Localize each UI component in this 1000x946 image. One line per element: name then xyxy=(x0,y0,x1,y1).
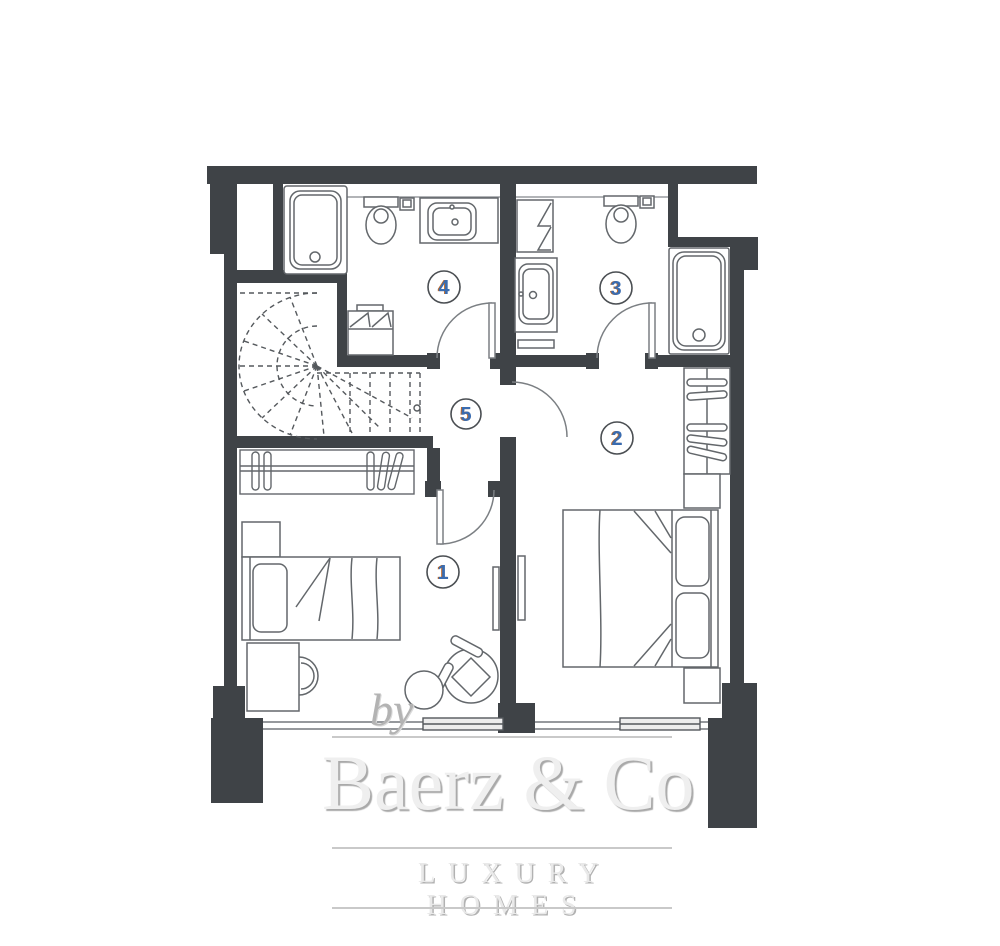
watermark-by: by xyxy=(370,683,413,736)
tv-room1 xyxy=(493,567,499,630)
room-label-4: 4 xyxy=(428,271,460,303)
wall-right xyxy=(730,247,744,683)
svg-text:5: 5 xyxy=(460,404,471,426)
wall-notch-left xyxy=(668,184,678,237)
floor-plan-drawing: 1 2 3 4 5 xyxy=(0,0,1000,946)
toilet-paper-holder xyxy=(640,196,654,208)
bathroom4-fixtures xyxy=(284,186,498,355)
wall-left xyxy=(224,184,237,686)
wall-notch-bottom xyxy=(668,237,758,247)
tv-room2 xyxy=(518,556,525,620)
room2-furniture xyxy=(518,368,730,703)
desk xyxy=(247,643,318,711)
room-label-2: 2 xyxy=(601,422,633,454)
nightstand xyxy=(242,522,280,557)
sink-vanity xyxy=(420,198,498,243)
nightstand xyxy=(684,474,720,508)
floor-plan-page: by Baerz & Co LUXURY HOMES xyxy=(0,0,1000,946)
door-room2 xyxy=(512,382,567,437)
room-label-3: 3 xyxy=(600,272,632,304)
wall-pillar-bottom-right-a xyxy=(722,683,757,718)
single-bed xyxy=(242,557,400,640)
wall-pillar-bottom-left-b xyxy=(211,718,263,803)
door-room3 xyxy=(597,303,655,358)
wall-divider-lower xyxy=(500,437,516,710)
tall-cabinet xyxy=(517,200,553,252)
nightstand xyxy=(684,668,720,703)
toilet xyxy=(364,197,398,244)
wall-under-stairs xyxy=(225,436,433,448)
cabinet xyxy=(348,305,393,355)
door-jamb xyxy=(427,353,440,369)
shower xyxy=(284,186,347,274)
wall-shaft-right xyxy=(273,184,283,283)
toilet xyxy=(604,196,638,243)
sink-vanity xyxy=(515,258,557,348)
double-bed xyxy=(563,510,718,667)
wall-top xyxy=(207,166,757,184)
wall-pillar-bottom-right-b xyxy=(708,718,757,828)
toilet-paper-holder xyxy=(400,198,414,210)
svg-text:2: 2 xyxy=(611,428,622,450)
wall-divider-upper xyxy=(500,184,516,385)
wardrobe xyxy=(684,368,730,474)
room-label-1: 1 xyxy=(427,556,459,588)
svg-text:1: 1 xyxy=(437,562,448,584)
door-room4 xyxy=(437,303,495,358)
bathtub xyxy=(669,248,729,354)
room-label-5: 5 xyxy=(451,399,481,429)
closet xyxy=(240,450,414,494)
wall-pillar-bottom-left-a xyxy=(213,686,245,718)
svg-text:4: 4 xyxy=(438,277,450,299)
svg-text:3: 3 xyxy=(610,278,621,300)
wall-bath4-left xyxy=(337,283,347,367)
door-room1 xyxy=(437,490,494,544)
